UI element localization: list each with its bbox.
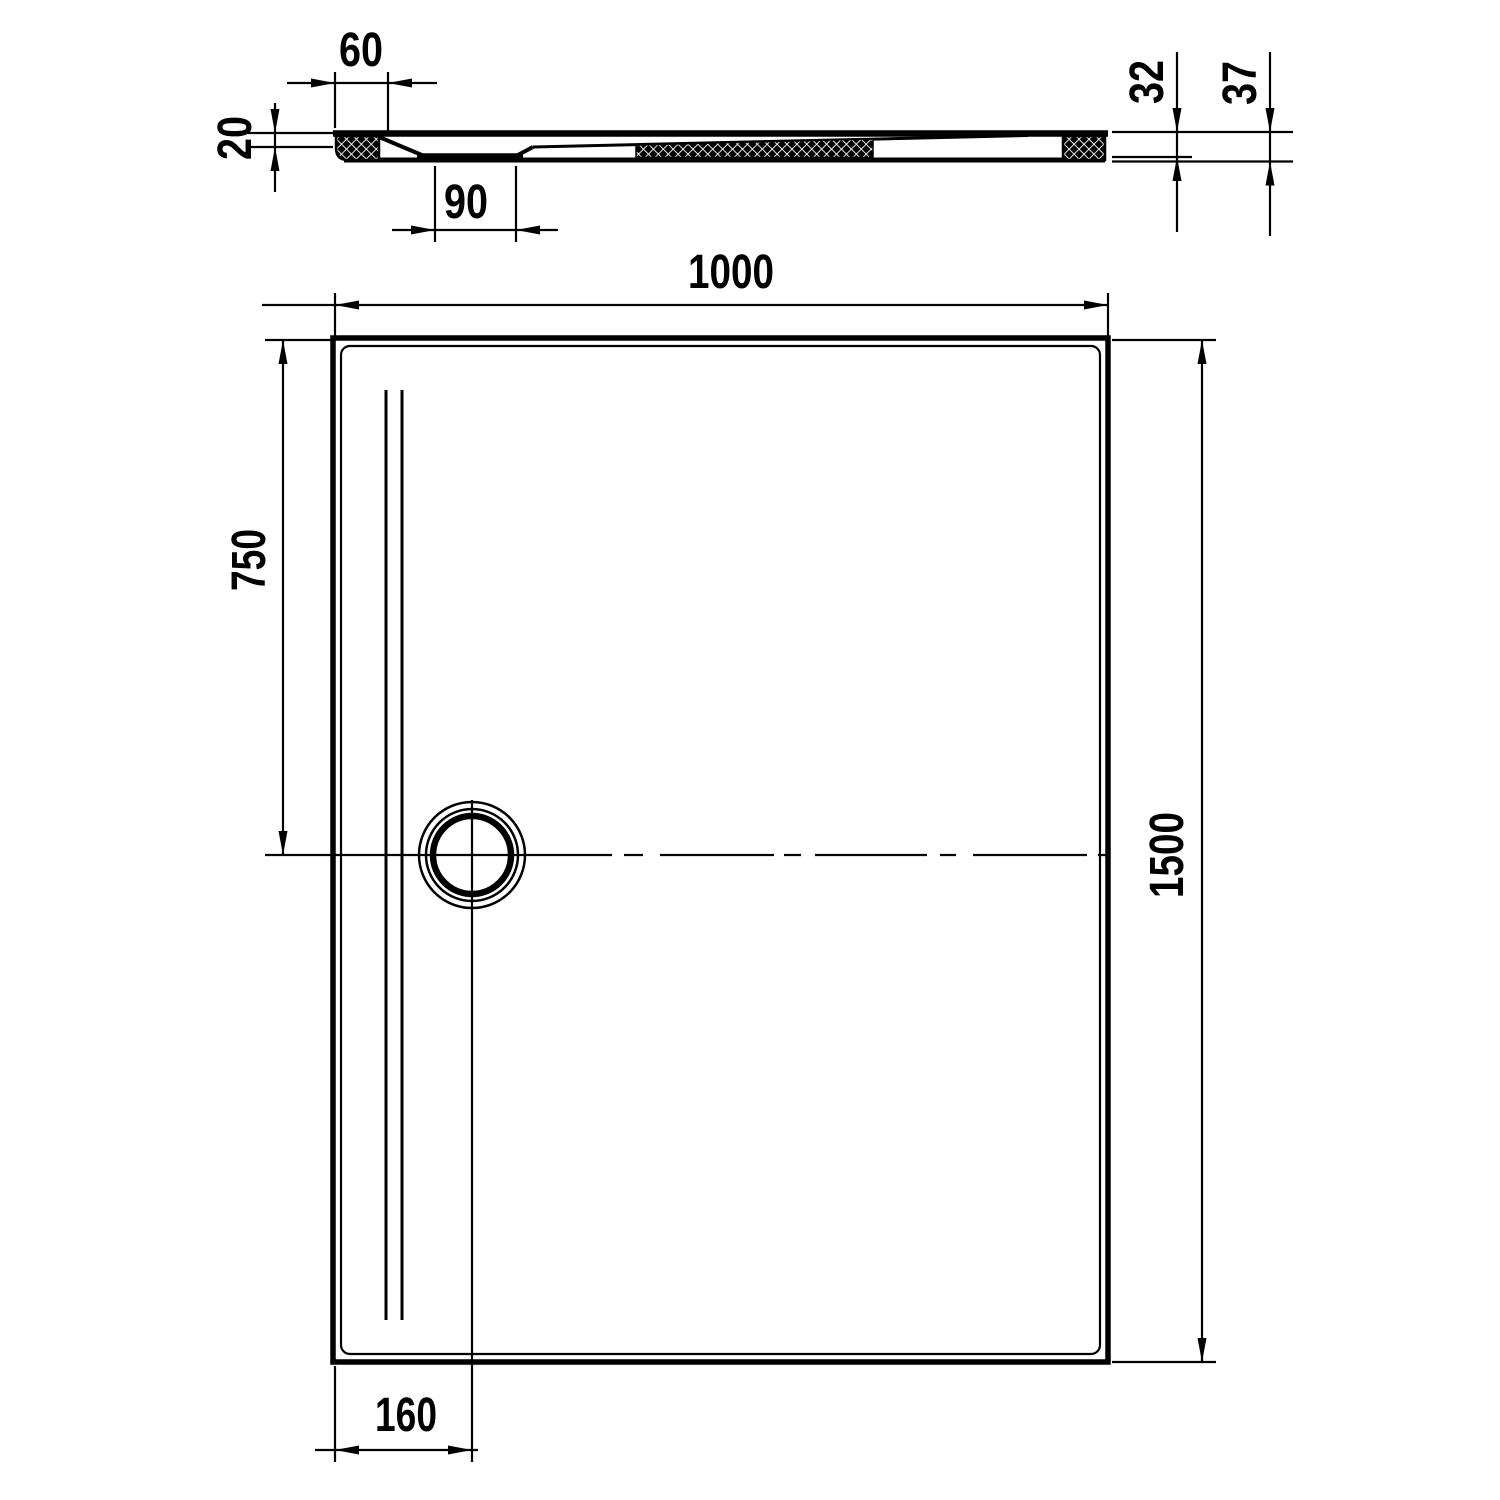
- technical-drawing-shower-tray: 60 20 90: [0, 0, 1500, 1500]
- arrowhead: [448, 1446, 472, 1455]
- arrowhead: [279, 340, 288, 364]
- arrowhead: [271, 147, 280, 171]
- arrowhead: [516, 226, 540, 235]
- dim-label-60: 60: [339, 24, 383, 77]
- arrowhead: [388, 79, 412, 88]
- arrowhead: [1084, 301, 1108, 310]
- tray-plan-outline: [333, 338, 1108, 1362]
- arrowhead: [1198, 340, 1207, 364]
- dimension-60: [287, 72, 437, 131]
- dimension-1000: [262, 293, 1108, 336]
- arrowhead: [335, 301, 359, 310]
- arrowhead: [1266, 108, 1275, 132]
- tray-outer-edge: [333, 338, 1108, 1362]
- deck-slope-right: [517, 147, 533, 156]
- arrowhead: [1198, 1338, 1207, 1362]
- dimension-750: [265, 340, 333, 855]
- arrowhead: [271, 109, 280, 133]
- dim-label-1500: 1500: [1141, 812, 1194, 898]
- section-view: 60 20 90: [209, 24, 1293, 242]
- dim-label-37: 37: [1214, 61, 1267, 105]
- mid-hatch-strip: [636, 139, 873, 158]
- arrowhead: [411, 226, 435, 235]
- arrowhead: [335, 1446, 359, 1455]
- dim-label-750: 750: [223, 529, 276, 591]
- dim-label-90: 90: [444, 176, 488, 229]
- left-edge-block: [336, 136, 379, 160]
- tray-inner-rim: [341, 346, 1100, 1354]
- dim-label-32: 32: [1121, 60, 1174, 104]
- arrowhead: [279, 831, 288, 855]
- deck-slope-left: [379, 137, 423, 156]
- tray-section-profile: [333, 134, 1108, 161]
- arrowhead: [311, 79, 335, 88]
- plan-view: 1000 750 1500 160: [223, 246, 1216, 1462]
- dim-label-20: 20: [209, 116, 262, 160]
- dim-label-1000: 1000: [688, 246, 774, 299]
- right-edge-block: [1063, 136, 1105, 160]
- arrowhead: [1266, 162, 1275, 186]
- dim-label-160: 160: [375, 1389, 437, 1442]
- arrowhead: [1173, 108, 1182, 132]
